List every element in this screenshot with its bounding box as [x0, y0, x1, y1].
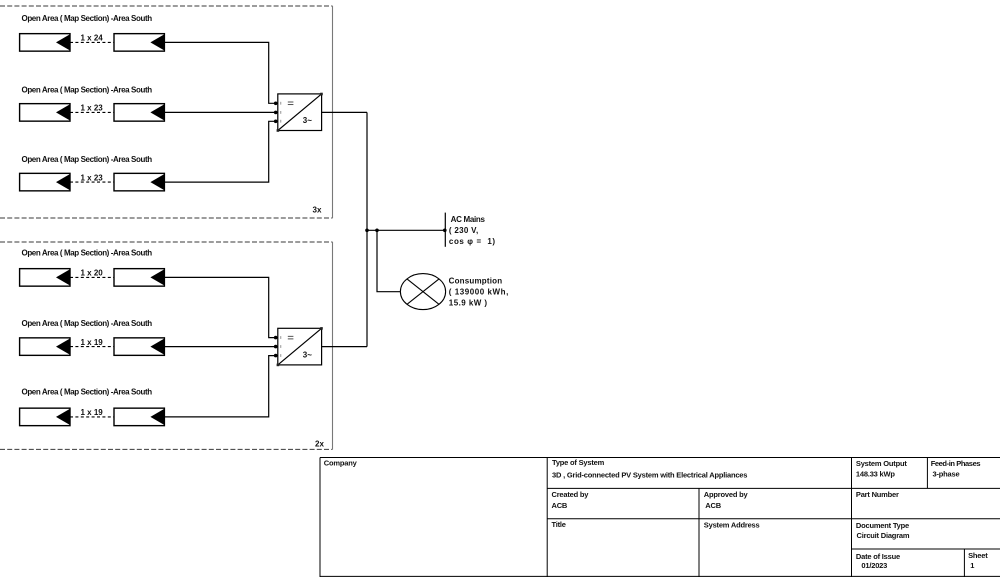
- svg-text:Part Number: Part Number: [856, 490, 899, 499]
- svg-text:Document Type: Document Type: [856, 521, 909, 530]
- svg-text:15.9 kW ): 15.9 kW ): [449, 299, 488, 308]
- svg-text:3~: 3~: [303, 350, 312, 359]
- svg-text:3D , Grid-connected PV System: 3D , Grid-connected PV System with Elect…: [552, 471, 747, 480]
- svg-text:3x: 3x: [313, 206, 322, 215]
- svg-text:Open Area ( Map Section) -Area: Open Area ( Map Section) -Area South: [22, 319, 153, 328]
- svg-text:ACB: ACB: [552, 501, 568, 510]
- svg-text:1 x 19: 1 x 19: [81, 408, 104, 417]
- svg-text:3-phase: 3-phase: [933, 470, 960, 479]
- svg-text:Open Area ( Map Section) -Area: Open Area ( Map Section) -Area South: [22, 14, 153, 23]
- svg-text:2x: 2x: [315, 439, 324, 448]
- svg-text:ACB: ACB: [705, 501, 721, 510]
- svg-text:Created by: Created by: [552, 490, 590, 499]
- svg-text:1 x 23: 1 x 23: [81, 173, 104, 182]
- svg-text:1: 1: [970, 561, 974, 570]
- svg-text:Type of System: Type of System: [552, 458, 605, 467]
- svg-text:3~: 3~: [303, 116, 312, 125]
- svg-text:Open Area ( Map Section) -Area: Open Area ( Map Section) -Area South: [22, 85, 153, 94]
- svg-text:Consumption: Consumption: [449, 277, 503, 286]
- svg-text:1 x 19: 1 x 19: [81, 338, 104, 347]
- svg-text:1 x 23: 1 x 23: [81, 104, 104, 113]
- svg-text:Date of Issue: Date of Issue: [856, 552, 900, 561]
- svg-text:System Address: System Address: [704, 521, 760, 530]
- svg-text:1 x 20: 1 x 20: [81, 269, 104, 278]
- svg-text:Title: Title: [552, 520, 566, 529]
- svg-text:Approved by: Approved by: [704, 490, 749, 499]
- svg-text:01/2023: 01/2023: [861, 561, 887, 570]
- svg-text:Feed-in Phases: Feed-in Phases: [931, 459, 981, 468]
- svg-text:Sheet: Sheet: [968, 551, 988, 560]
- svg-text:AC Mains: AC Mains: [451, 215, 486, 224]
- svg-text:cos φ = 1): cos φ = 1): [449, 237, 496, 246]
- svg-text:1 x 24: 1 x 24: [81, 34, 104, 43]
- svg-text:System Output: System Output: [856, 459, 907, 468]
- svg-text:Company: Company: [324, 459, 358, 468]
- svg-text:( 139000 kWh,: ( 139000 kWh,: [449, 288, 509, 297]
- svg-text:Open Area ( Map Section) -Area: Open Area ( Map Section) -Area South: [22, 388, 153, 397]
- svg-text:Open Area ( Map Section) -Area: Open Area ( Map Section) -Area South: [22, 155, 153, 164]
- svg-text:Circuit Diagram: Circuit Diagram: [857, 531, 910, 540]
- svg-text:Open Area ( Map Section) -Area: Open Area ( Map Section) -Area South: [22, 249, 153, 258]
- svg-text:148.33 kWp: 148.33 kWp: [856, 470, 895, 479]
- svg-text:( 230 V,: ( 230 V,: [449, 226, 479, 235]
